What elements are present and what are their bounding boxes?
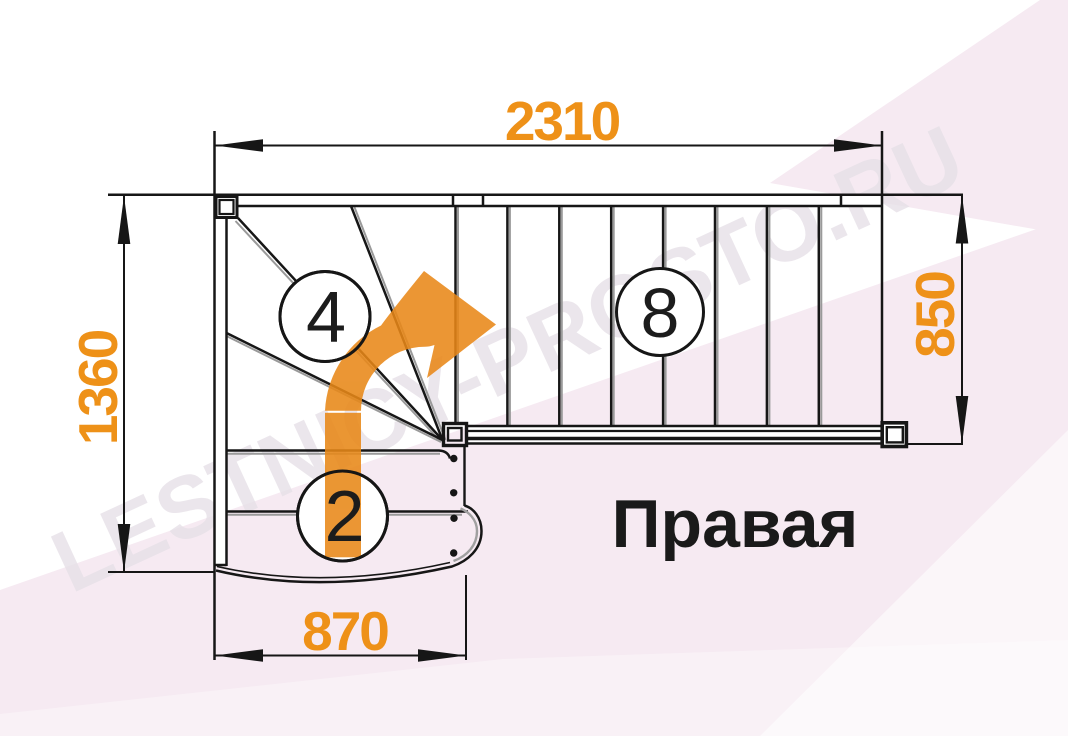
svg-text:2: 2 bbox=[324, 477, 364, 557]
svg-text:4: 4 bbox=[306, 278, 346, 358]
svg-text:2310: 2310 bbox=[505, 90, 620, 152]
svg-text:1360: 1360 bbox=[67, 330, 129, 445]
svg-text:870: 870 bbox=[302, 600, 388, 662]
svg-text:850: 850 bbox=[904, 272, 966, 358]
svg-text:Правая: Правая bbox=[612, 486, 859, 562]
svg-text:8: 8 bbox=[641, 274, 680, 352]
